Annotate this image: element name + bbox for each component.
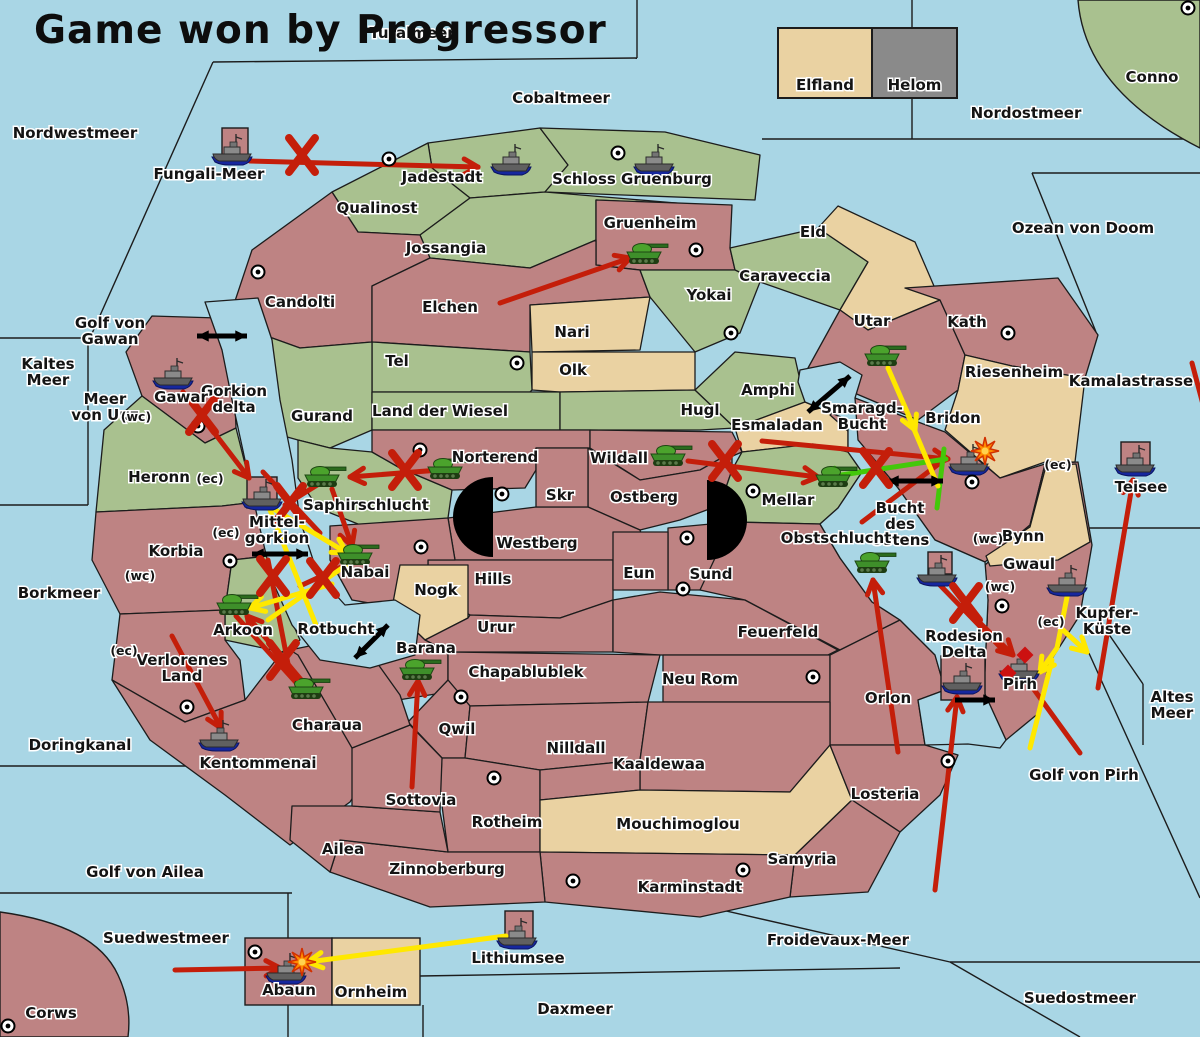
sea-label: Nordostmeer [971, 104, 1082, 122]
region-label: Neu Rom [662, 670, 738, 688]
region-label: Sottovia [386, 791, 457, 809]
region-label: Chapablublek [468, 663, 584, 681]
region-label: Abaun [262, 981, 316, 999]
city-dot-center [751, 489, 756, 494]
city-dot-center [685, 536, 690, 541]
territory[interactable] [530, 297, 650, 352]
region-label: Skr [546, 486, 575, 504]
map-canvas: ElflandHelomTuralmeerNordwestmeerCobaltm… [0, 0, 1200, 1037]
sea-label: Froidevaux-Meer [767, 931, 910, 949]
explosion-core [982, 448, 989, 455]
region-label: Ostberg [610, 488, 678, 506]
sea-label: Corws [25, 1004, 77, 1022]
sea-label: Cobaltmeer [512, 89, 610, 107]
region-label: Nari [554, 323, 589, 341]
region-label: Charaua [292, 716, 362, 734]
region-label: Elchen [422, 298, 478, 316]
region-label: Ailea [322, 840, 364, 858]
region-label: Orlon [865, 689, 911, 707]
region-label: Wildall [590, 449, 648, 467]
region-label: Zinnoberburg [389, 860, 505, 878]
region-label: Nilldall [546, 739, 605, 757]
region-label: Hills [475, 570, 512, 588]
city-dot-center [515, 361, 520, 366]
city-dot-center [387, 157, 392, 162]
sea-label: Conno [1126, 68, 1179, 86]
region-label: Eld [800, 223, 826, 241]
region-label: Nabai [341, 563, 390, 581]
city-dot-center [681, 587, 686, 592]
legend: ElflandHelom [778, 28, 957, 98]
region-label: Tel [385, 352, 409, 370]
modifier-label: (ec) [196, 471, 223, 486]
region-label: Land der Wiesel [372, 402, 508, 420]
region-label: Caraveccia [739, 267, 831, 285]
city-dot-center [1000, 604, 1005, 609]
territory[interactable] [596, 200, 735, 270]
city-dot-center [616, 151, 621, 156]
sea-label: Daxmeer [537, 1000, 613, 1018]
region-label: Kath [947, 313, 987, 331]
region-label: Karminstadt [638, 878, 743, 896]
map-title: Game won by Progressor [34, 8, 607, 53]
region-label: Rotheim [472, 813, 543, 831]
region-label: Kaaldewaa [613, 755, 705, 773]
region-label: Ornheim [335, 983, 407, 1001]
region-label: Utar [854, 312, 891, 330]
region-label: Urur [477, 618, 515, 636]
game-map: ElflandHelomTuralmeerNordwestmeerCobaltm… [0, 0, 1200, 1037]
city-dot-center [253, 950, 258, 955]
sea-label: Golf von Pirh [1029, 766, 1139, 784]
region-label: Schloss Gruenburg [552, 170, 712, 188]
city-dot-center [185, 705, 190, 710]
region-label: Samyria [768, 850, 837, 868]
region-label: Arkoon [213, 621, 273, 639]
city-dot-center [6, 1024, 11, 1029]
region-label: Qwil [439, 720, 476, 738]
modifier-label: (ec) [212, 525, 239, 540]
region-label: Olk [559, 361, 588, 379]
sea-label: Golf von Ailea [86, 863, 204, 881]
region-label: Nogk [414, 581, 459, 599]
region-label: Riesenheim [965, 363, 1063, 381]
city-dot-center [811, 675, 816, 680]
attack-arrow-red [175, 968, 280, 970]
explosion-core [299, 959, 306, 966]
sea-label: Ozean von Doom [1012, 219, 1154, 237]
region-label: Yokai [685, 286, 731, 304]
sea-label: Lithiumsee [471, 949, 564, 967]
city-dot-center [946, 759, 951, 764]
region-label: Mouchimoglou [616, 815, 739, 833]
city-dot-center [729, 331, 734, 336]
region-label: Gruenheim [604, 214, 697, 232]
city-dot-center [500, 492, 505, 497]
region-label: Feuerfeld [738, 623, 819, 641]
region-label: Bynn [1002, 527, 1045, 545]
sea-label: KaltesMeer [21, 355, 74, 389]
modifier-label: (wc) [125, 568, 155, 583]
sea-label: Doringkanal [29, 736, 132, 754]
region-label: Korbia [148, 542, 203, 560]
region-label: Barana [396, 639, 456, 657]
sea-label: Suedostmeer [1024, 989, 1137, 1007]
region-label: Amphi [741, 381, 795, 399]
sea-label: Teisee [1115, 478, 1168, 496]
legend-label: Helom [888, 76, 942, 94]
region-label: Losteria [851, 785, 920, 803]
region-label: Obstschlucht [781, 529, 892, 547]
region-label: Eun [623, 564, 655, 582]
city-dot-center [228, 559, 233, 564]
region-label: Sund [690, 565, 733, 583]
region-label: Bridon [925, 409, 981, 427]
sea-label: Kupfer-Küste [1075, 604, 1138, 638]
region-label: Westberg [496, 534, 577, 552]
city-dot-center [694, 248, 699, 253]
city-dot-center [970, 480, 975, 485]
region-label: Hugl [680, 401, 719, 419]
region-label: Candolti [265, 293, 335, 311]
sea-label: Borkmeer [18, 584, 101, 602]
sea-label: Suedwestmeer [103, 929, 229, 947]
modifier-label: (ec) [1037, 614, 1064, 629]
city-dot-center [492, 776, 497, 781]
sea-label: Rotbucht [297, 620, 374, 638]
region-label: Gwaul [1003, 555, 1055, 573]
city-dot-center [459, 695, 464, 700]
sea-label: Fungali-Meer [154, 165, 265, 183]
modifier-label: (wc) [985, 579, 1015, 594]
region-label: Kentommenai [199, 754, 316, 772]
region-label: Jossangia [405, 239, 487, 257]
modifier-label: (wc) [973, 531, 1003, 546]
city-dot-center [571, 879, 576, 884]
region-label: Mellar [762, 491, 816, 509]
modifier-label: (ec) [1044, 457, 1071, 472]
city-dot-center [1186, 6, 1191, 11]
sea-label: Golf vonGawan [75, 314, 145, 348]
sea-label: AltesMeer [1150, 688, 1193, 722]
region-label: Jadestadt [401, 168, 483, 186]
city-dot-center [419, 545, 424, 550]
region-label: Qualinost [337, 199, 418, 217]
modifier-label: (wc) [121, 409, 151, 424]
modifier-label: (ec) [110, 643, 137, 658]
territory[interactable] [532, 352, 695, 392]
region-label: Heronn [128, 468, 190, 486]
region-label: Saphirschlucht [303, 496, 429, 514]
sea-label: Nordwestmeer [13, 124, 138, 142]
sea-label: Mittel-gorkion [245, 513, 310, 547]
region-label: Esmaladan [731, 416, 823, 434]
arrow-head [1040, 656, 1042, 672]
region-label: Gawar [154, 388, 208, 406]
region-label: Pirh [1003, 675, 1037, 693]
city-dot-center [1006, 331, 1011, 336]
region-label: Norterend [452, 448, 539, 466]
legend-label: Elfland [796, 76, 854, 94]
city-dot-center [741, 868, 746, 873]
sea-label: Kamalastrasse [1069, 372, 1193, 390]
city-dot-center [256, 270, 261, 275]
region-label: Gurand [291, 407, 353, 425]
